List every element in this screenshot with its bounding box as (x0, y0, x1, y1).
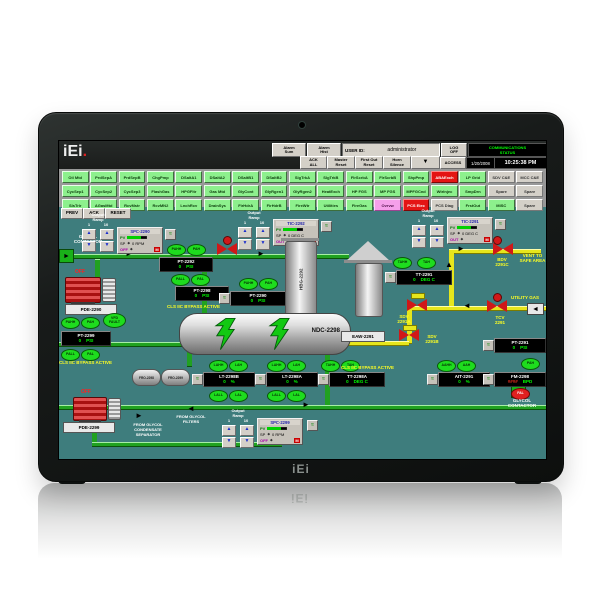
readout: FM-2298 ####BPD (494, 372, 546, 387)
alarm-tag: AAHH (437, 360, 456, 372)
sdv-b-label: SDV 2291B (417, 334, 447, 344)
nav-button[interactable]: DSaltA2 (204, 171, 231, 183)
readout-unit: PSI (186, 265, 193, 270)
product-photo: iEi iEi iEi. Alarm Sum Alarm Hist USER I… (0, 0, 600, 600)
trend-button[interactable]: ≈ (427, 374, 438, 385)
flow-arrow-icon: ► (135, 412, 143, 420)
brand-logo: iEi (39, 462, 563, 476)
alarm-tag: PAHH (167, 244, 186, 256)
sp-label: SP (450, 231, 455, 236)
controller-faceplate[interactable]: TIC-2291 PV SP◆0 DEG C OUT◆M (447, 217, 493, 244)
readout-value: 0 (195, 294, 198, 299)
readout-value: 0 (346, 380, 349, 385)
readout: LT-2298A 0% (266, 372, 318, 387)
flow-arrow-icon: ► (257, 250, 265, 258)
flare-stack-body (356, 264, 382, 316)
nav-button[interactable]: CycSep1 (62, 185, 89, 197)
sp-value: 0 DEG C (288, 233, 304, 238)
vessel-tag: NDC-2298 (312, 328, 340, 334)
reflection-logo: iEi (38, 491, 562, 505)
trend-button[interactable]: ≈ (385, 272, 396, 283)
alarm-tag: TAHH (321, 360, 340, 372)
alarm-tag: LAL (229, 390, 248, 402)
hmi-header: iEi. Alarm Sum Alarm Hist USER ID: admin… (59, 141, 546, 169)
log-off-button[interactable]: LOG OFF (441, 143, 467, 157)
ramp-up-button[interactable]: ▲ (240, 425, 254, 436)
pv-bar (267, 427, 287, 430)
pump-cooler (108, 398, 121, 420)
readout-unit: DEG C (354, 380, 368, 385)
readout-unit: PSI (202, 294, 209, 299)
nav-button[interactable]: DSaltA1 (175, 171, 202, 183)
diamond-icon: ◆ (460, 237, 463, 241)
from-filters-label: FROM GLYCOL FILTERS (167, 415, 215, 425)
alarm-tag: LAHH (267, 360, 286, 372)
valve-actuator-icon (493, 236, 502, 245)
output-ramp-panel: Output Ramp 110 ▲ ▲ ▼ ▼ (237, 211, 271, 250)
readout-value: 0 (179, 265, 182, 270)
flow-arrow-icon: ▲ (445, 261, 453, 269)
output-ramp-label: Output Ramp (411, 209, 445, 218)
bypass-active-text: CLS IIC BYPASS ACTIVE (59, 360, 149, 365)
vent-safe-area-label: VENT TO SAFE AREA (519, 253, 546, 263)
master-reset-button[interactable]: Master Reset (327, 156, 355, 169)
nav-button[interactable]: CycSep3 (119, 185, 146, 197)
glycol-filter-drum: FRO-2299 (161, 369, 190, 386)
time-display: 10:25:38 PM (494, 157, 547, 169)
demister-arrow-icon (214, 318, 236, 350)
trend-button[interactable]: ≈ (192, 374, 203, 385)
ramp-up-button[interactable]: ▲ (256, 227, 270, 238)
flare-stack-column (355, 263, 383, 317)
ramp-range-low: 1 (418, 219, 420, 224)
drum-tag: FRO-2299 (168, 376, 183, 380)
nav-button[interactable]: ABAExch (431, 171, 458, 183)
pv-label: PV (276, 227, 281, 232)
valve-actuator-icon (493, 293, 502, 302)
nav-button[interactable]: FireGas (346, 199, 373, 211)
column-HBG-2292: HBG-2292 (285, 241, 317, 317)
readout-value: 0 (223, 380, 226, 385)
column-rim (281, 238, 319, 241)
trend-button[interactable]: ≈ (483, 340, 494, 351)
nav-button[interactable]: MCC C&E (516, 171, 543, 183)
output-ramp-label: Output Ramp (81, 213, 115, 222)
diamond-icon: ◆ (130, 247, 133, 251)
ramp-up-button[interactable]: ▲ (412, 225, 426, 236)
page-down-button[interactable]: ▼ (411, 156, 440, 169)
flow-arrow-icon: ◄ (463, 302, 471, 310)
nav-button[interactable]: FlrScrbB (374, 171, 401, 183)
diamond-icon: ◆ (267, 432, 270, 436)
ramp-down-button[interactable]: ▼ (412, 237, 426, 248)
alarm-summary-button[interactable]: Alarm Sum (272, 143, 306, 157)
utility-gas-label: UTILITY GAS (505, 295, 545, 300)
readout-unit: PSI (86, 339, 93, 344)
output-ramp-label: Output Ramp (221, 409, 255, 418)
readout-value: 0 (251, 299, 254, 304)
alarm-tag: PAH (259, 278, 278, 290)
nav-button[interactable]: DSaltB1 (232, 171, 259, 183)
nav-button[interactable]: PrdSepA (90, 171, 117, 183)
nav-button[interactable]: Spare (516, 185, 543, 197)
screen-brand-text: iEi (63, 143, 83, 160)
sp-label: SP (276, 233, 281, 238)
nav-button[interactable]: FrstOut (459, 199, 486, 211)
nav-button[interactable]: ChgPmp (147, 171, 174, 183)
readout-value: #### (508, 380, 518, 385)
communications-status: COMMUNICATIONS STATUS (468, 143, 547, 157)
nav-button[interactable]: DrainSys (204, 199, 231, 211)
screen-brand-logo: iEi. (63, 143, 87, 161)
output-ramp-panel: Output Ramp 110 ▲ ▲ ▼ ▼ (81, 213, 115, 252)
sp-value: 0 RPM (132, 241, 144, 246)
nav-button[interactable]: FirHdrB (261, 199, 288, 211)
alarm-tag: PAL (191, 274, 210, 286)
readout-unit: DEG C (421, 278, 435, 283)
nav-button[interactable]: FlashGas (147, 185, 174, 197)
ramp-range-low: 1 (244, 221, 246, 226)
ramp-down-button[interactable]: ▼ (238, 239, 252, 250)
hmi-screen: iEi. Alarm Sum Alarm Hist USER ID: admin… (58, 140, 547, 460)
readout-value: 0 (286, 380, 289, 385)
pv-bar (127, 236, 147, 239)
readout: LT-2298B 0% (203, 372, 255, 387)
ramp-down-button[interactable]: ▼ (82, 241, 96, 252)
readout-value: 0 (458, 380, 461, 385)
flare-stack-cap (346, 241, 390, 261)
nav-button[interactable]: FlrScrbA (346, 171, 373, 183)
nav-button[interactable]: MPFGCnd (403, 185, 430, 197)
ramp-range-low: 1 (228, 419, 230, 424)
nav-button[interactable]: Spare (516, 199, 543, 211)
alarm-tag: AAH (457, 360, 476, 372)
inlet-arrow-icon: ► (59, 249, 74, 263)
nav-button[interactable]: HP FGS (346, 185, 373, 197)
glycol-pump-PDE-2299[interactable] (73, 397, 107, 421)
nav-button[interactable]: GlyCont (232, 185, 259, 197)
drum-tag: FRO-2298 (139, 376, 154, 380)
flow-arrow-icon: ► (457, 245, 465, 253)
readout-unit: BPD (523, 380, 533, 385)
ramp-down-button[interactable]: ▼ (100, 241, 114, 252)
readout-unit: % (231, 380, 235, 385)
alarm-tag: LAL (287, 390, 306, 402)
ramp-down-button[interactable]: ▼ (240, 437, 254, 448)
trend-button[interactable]: ≈ (255, 374, 266, 385)
nav-button[interactable]: DSaltB2 (261, 171, 288, 183)
nav-button[interactable]: SmpDrn (459, 185, 486, 197)
readout-value: 0 (79, 339, 82, 344)
user-id-label: USER ID: (345, 148, 365, 153)
alarm-tag: LAH (287, 360, 306, 372)
flow-arrow-icon: ► (302, 401, 310, 409)
readout-value: 0 (513, 346, 516, 351)
exchanger-tag: EAW-2291 (341, 331, 385, 342)
trend-button[interactable]: ≈ (321, 221, 332, 232)
alarm-tag: TAHH (393, 257, 412, 269)
flow-arrow-icon: ◄ (187, 405, 195, 413)
mode-button[interactable]: M (294, 438, 300, 443)
nav-button[interactable]: HeatExch (317, 185, 344, 197)
pump-cooler (102, 278, 116, 302)
prev-button[interactable]: PREV (61, 208, 83, 219)
glycol-filter-drum: FRO-2298 (132, 369, 161, 386)
readout: PT-2291 0PSI (494, 338, 546, 353)
ramp-range-high: 10 (104, 223, 108, 228)
nav-button[interactable]: GlyRgen2 (289, 185, 316, 197)
pv-bar (283, 228, 303, 231)
nav-row: SlsTrlrAGasMtdRcvMstrRcvMN2LnchRcvDrainS… (59, 199, 546, 211)
diamond-icon: ◆ (457, 231, 460, 235)
nav-button[interactable]: GlyRgen1 (261, 185, 288, 197)
sdv-a-label: SDV 2291A (389, 314, 419, 324)
nav-button[interactable]: PrdSepB (119, 171, 146, 183)
from-condensate-label: FROM GLYCOL CONDENSATE SEPARATOR (119, 423, 177, 437)
alarm-tag: LALL (267, 390, 286, 402)
valve-actuator-icon (223, 236, 232, 245)
trend-button[interactable]: ≈ (307, 420, 318, 431)
nav-button-grid: Oil MtdPrdSepAPrdSepBChgPmpDSaltA1DSaltA… (59, 169, 546, 207)
output-ramp-panel: Output Ramp 110 ▲ ▲ ▼ ▼ (221, 409, 255, 448)
chevron-down-icon: ▼ (423, 159, 429, 166)
alarm-tag: PAHH (61, 317, 80, 329)
alarm-tag: PAH (187, 244, 206, 256)
pv-label: PV (260, 426, 265, 431)
trend-button[interactable]: ≈ (495, 219, 506, 230)
device-reflection: iEi (38, 483, 562, 578)
trend-button[interactable]: ≈ (483, 374, 494, 385)
trend-button[interactable]: ≈ (165, 229, 176, 240)
readout-unit: % (294, 380, 298, 385)
ramp-range-high: 10 (260, 221, 264, 226)
ramp-down-button[interactable]: ▼ (222, 437, 236, 448)
user-id-field[interactable]: USER ID: administrator (342, 143, 440, 157)
alarm-tag: LAH (229, 360, 248, 372)
controller-faceplate[interactable]: SPC-2290 PV SP◆0 RPM OFF◆M (117, 227, 163, 254)
pump-status: OFF (81, 389, 91, 395)
controller-faceplate[interactable]: SPC-2299 PV SP◆0 RPM OFF◆M (257, 418, 303, 445)
sp-value: 0 DEG C (462, 231, 478, 236)
out-label: OFF (120, 247, 128, 252)
nav-button[interactable]: WtrInjec (431, 185, 458, 197)
mode-button[interactable]: M (484, 237, 490, 242)
nav-button[interactable]: LnchRcv (175, 199, 202, 211)
first-out-reset-button[interactable]: First Out Reset (355, 156, 383, 169)
readout: PT-2299 0PSI (61, 331, 111, 346)
ramp-up-button[interactable]: ▲ (100, 229, 114, 240)
sp-value: 0 RPM (272, 432, 284, 437)
ramp-range-high: 10 (244, 419, 248, 424)
ramp-down-button[interactable]: ▼ (256, 239, 270, 250)
alarm-tag: PAH (521, 358, 540, 370)
ramp-range-high: 10 (434, 219, 438, 224)
nav-button[interactable]: CycSep2 (90, 185, 117, 197)
readout-unit: % (466, 380, 470, 385)
date-display: 1/20/2008 (466, 157, 495, 169)
column-tag: HBG-2292 (286, 242, 316, 316)
glycol-contactor-label: GLYCOL CONTACTOR (499, 398, 545, 409)
pv-bar (457, 226, 477, 229)
ramp-up-button[interactable]: ▲ (430, 225, 444, 236)
readout-value: 0 (413, 278, 416, 283)
sdv-valve-icon (399, 329, 419, 341)
out-label: OFF (260, 438, 268, 443)
screen-brand-dot: . (83, 143, 87, 160)
ramp-up-button[interactable]: ▲ (222, 425, 236, 436)
readout: TT-2291 0DEG C (396, 270, 452, 285)
nav-button[interactable]: SDV C&E (488, 171, 515, 183)
nav-button[interactable]: SlgTrkB (317, 171, 344, 183)
horn-silence-button[interactable]: Horn Silence (383, 156, 411, 169)
nav-button[interactable]: Gas Mtd (204, 185, 231, 197)
vfd-fault-tag: VFD FAULT (103, 313, 126, 328)
ramp-up-button[interactable]: ▲ (82, 229, 96, 240)
trend-button[interactable]: ≈ (318, 374, 329, 385)
output-ramp-label: Output Ramp (237, 211, 271, 220)
alarm-tag: LAHH (209, 360, 228, 372)
ack-all-button[interactable]: ACK ALL (300, 156, 327, 169)
ramp-range-low: 1 (88, 223, 90, 228)
access-button[interactable]: ACCESS (440, 157, 466, 169)
pv-label: PV (120, 235, 125, 240)
output-ramp-panel: Output Ramp 110 ▲ ▲ ▼ ▼ (411, 209, 445, 248)
bdv-label: BDV 2291C (487, 257, 517, 267)
glycol-pump-PDE-2290[interactable] (65, 277, 101, 303)
utility-gas-arrow-icon: ◄ (527, 303, 544, 315)
demister-arrow-icon (268, 318, 290, 350)
alarm-tag: LALL (209, 390, 228, 402)
diamond-icon: ◆ (127, 241, 130, 245)
pv-label: PV (450, 225, 455, 230)
diamond-icon: ◆ (283, 233, 286, 237)
nav-button[interactable]: LP Grid (459, 171, 486, 183)
alarm-tag: PAHH (239, 278, 258, 290)
nav-button[interactable]: Oil Mtd (62, 171, 89, 183)
ramp-down-button[interactable]: ▼ (430, 237, 444, 248)
alarm-tag: PAH (81, 317, 100, 329)
alarm-tag: TAH (417, 257, 436, 269)
nav-button[interactable]: Utilities (317, 199, 344, 211)
out-label: OUT (450, 237, 458, 242)
nav-button[interactable]: RcvMN2 (147, 199, 174, 211)
nav-row: Oil MtdPrdSepAPrdSepBChgPmpDSaltA1DSaltA… (59, 171, 546, 183)
nav-button[interactable]: SlgTrkA (289, 171, 316, 183)
vessel-NDC-2298: NDC-2298 (179, 313, 351, 355)
sp-label: SP (120, 241, 125, 246)
nav-row: CycSep1CycSep2CycSep3FlashGasHPGFltrGas … (59, 185, 546, 197)
alarm-tag: PALL (171, 274, 190, 286)
utility-gas-pipe (407, 306, 546, 311)
panel-pc: iEi iEi. Alarm Sum Alarm Hist USER ID: a… (38, 112, 564, 482)
equipment-tag: PDE-2299 (63, 422, 115, 433)
readout: PT-2292 0PSI (159, 257, 213, 272)
alarm-history-button[interactable]: Alarm Hist (307, 143, 341, 157)
ramp-up-button[interactable]: ▲ (238, 227, 252, 238)
nav-button[interactable]: HPGFltr (175, 185, 202, 197)
diamond-icon: ◆ (270, 438, 273, 442)
pump-status: OFF (75, 269, 85, 275)
nav-button[interactable]: MISC (488, 199, 515, 211)
nav-button[interactable]: Ovrvw (374, 199, 401, 211)
mode-button[interactable]: M (154, 247, 160, 252)
user-id-value: administrator (365, 147, 439, 153)
readout-unit: PSI (258, 299, 265, 304)
trend-button[interactable]: ≈ (219, 293, 230, 304)
tcv-label: TCV 2291 (485, 315, 515, 325)
bypass-active-text: CLS IIC BYPASS ACTIVE (167, 304, 297, 309)
sdv-valve-icon (407, 299, 427, 311)
sp-label: SP (260, 432, 265, 437)
camera-icon (298, 121, 306, 129)
nav-button[interactable]: ShpPmp (403, 171, 430, 183)
nav-button[interactable]: FireWtr (289, 199, 316, 211)
readout: TT-2298A 0DEG C (329, 372, 385, 387)
nav-button[interactable]: MP FGS (374, 185, 401, 197)
readout-unit: PSI (520, 346, 527, 351)
nav-button[interactable]: Spare (488, 185, 515, 197)
